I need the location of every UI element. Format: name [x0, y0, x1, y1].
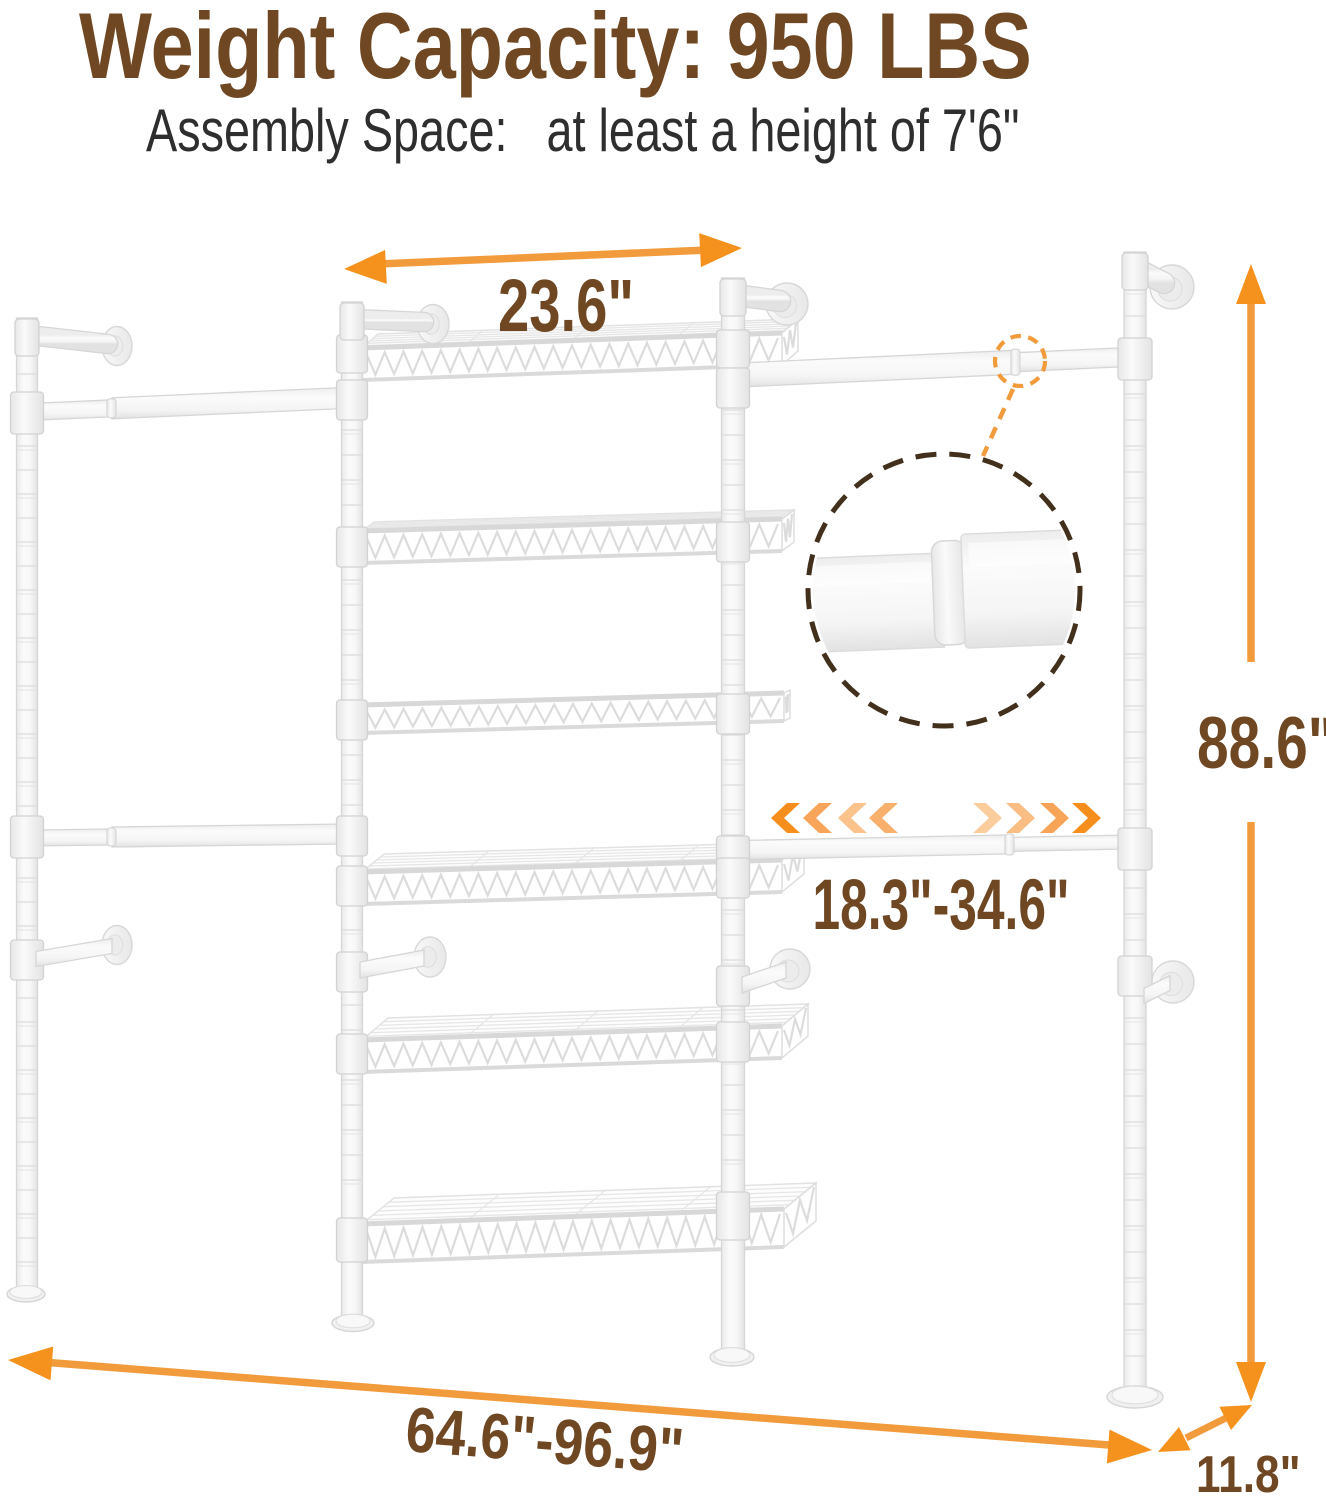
svg-text:23.6": 23.6" — [498, 265, 634, 347]
svg-text:88.6": 88.6" — [1197, 702, 1326, 783]
svg-text:Assembly Space: at least a h: Assembly Space: at least a height of 7'6… — [146, 97, 1019, 164]
svg-text:11.8": 11.8" — [1196, 1446, 1301, 1500]
svg-text:Weight Capacity: 950 LBS: Weight Capacity: 950 LBS — [79, 0, 1032, 99]
svg-text:18.3"-34.6": 18.3"-34.6" — [812, 865, 1069, 944]
